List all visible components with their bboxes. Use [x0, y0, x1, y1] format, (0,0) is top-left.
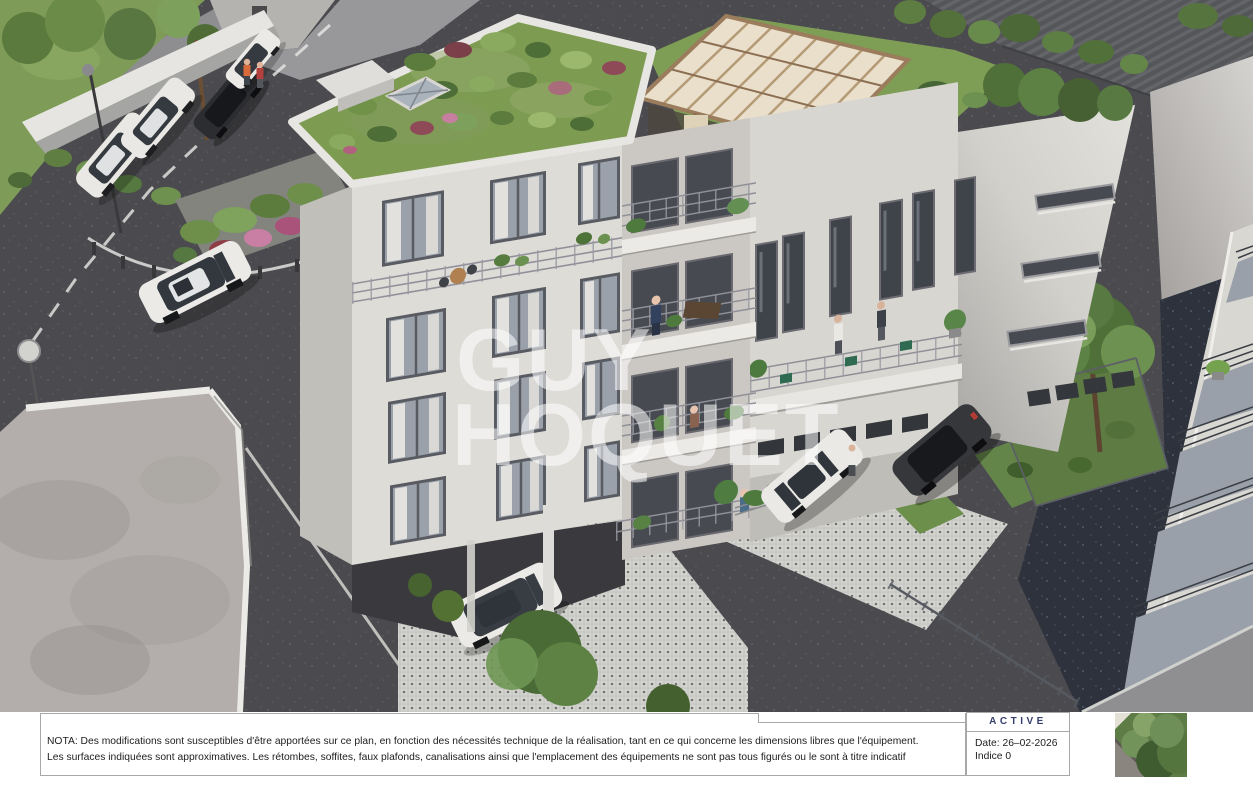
pedestrian-orange — [244, 59, 251, 85]
window — [388, 392, 446, 464]
pedestrian-red — [257, 62, 264, 88]
nota-line-2: Les surfaces indiquées sont approximativ… — [47, 750, 897, 766]
rendering-svg: GUY HOQUET — [0, 0, 1253, 712]
window — [578, 156, 620, 225]
garage-roof — [0, 390, 251, 712]
window — [386, 308, 446, 382]
nota-line-1: NOTA: Des modifications sont susceptible… — [47, 734, 897, 750]
window — [390, 476, 446, 546]
west-face — [300, 186, 352, 565]
window — [490, 171, 546, 245]
window — [382, 190, 444, 267]
status-badge: ACTIVE — [967, 713, 1069, 732]
architectural-rendering: GUY HOQUET — [0, 0, 1253, 712]
plan-sheet: GUY HOQUET NOTA: Des modifications sont … — [0, 0, 1253, 788]
nota-box: NOTA: Des modifications sont susceptible… — [40, 713, 966, 776]
watermark-line-2: HOQUET — [452, 385, 840, 484]
date-label: Date: 26–02-2026 — [975, 737, 1067, 750]
pilotis-column — [467, 540, 475, 632]
parking-person — [848, 445, 856, 477]
indice-label: Indice 0 — [975, 750, 1067, 763]
lounge-chair — [683, 301, 722, 319]
agency-photo-thumbnail — [1115, 713, 1187, 777]
revision-cell: ACTIVE Date: 26–02-2026 Indice 0 — [966, 712, 1070, 776]
